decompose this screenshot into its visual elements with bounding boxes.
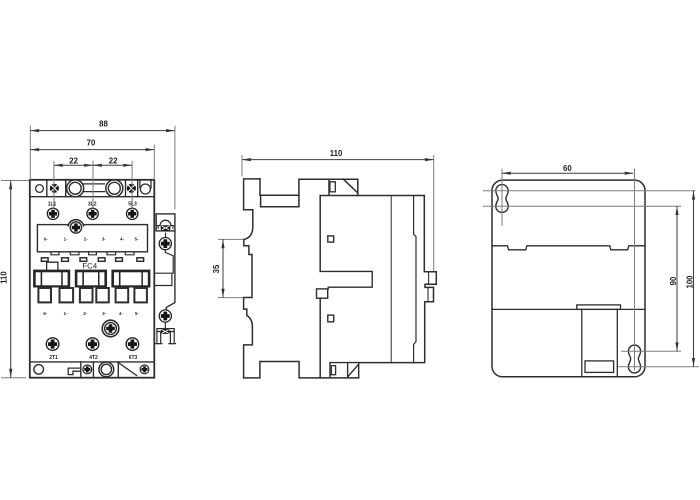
svg-text:3-: 3- [102, 237, 106, 242]
svg-text:1-: 1- [64, 237, 68, 242]
svg-text:6-: 6- [43, 311, 47, 316]
svg-text:5-: 5- [135, 311, 139, 316]
svg-text:110: 110 [330, 149, 343, 158]
svg-text:4-: 4- [119, 311, 123, 316]
svg-text:5L3: 5L3 [128, 201, 137, 207]
svg-text:4-: 4- [120, 237, 124, 242]
svg-text:4T2: 4T2 [89, 355, 98, 361]
svg-text:22: 22 [69, 157, 78, 166]
svg-text:6T3: 6T3 [129, 355, 138, 361]
svg-text:88: 88 [99, 119, 108, 128]
svg-text:1-: 1- [64, 311, 68, 316]
svg-text:3-: 3- [102, 311, 106, 316]
svg-text:1L1: 1L1 [48, 201, 57, 207]
svg-text:110: 110 [0, 271, 9, 284]
svg-text:2T1: 2T1 [49, 355, 58, 361]
svg-text:6-: 6- [44, 237, 48, 242]
svg-text:22: 22 [109, 157, 118, 166]
svg-text:70: 70 [87, 139, 96, 148]
svg-text:60: 60 [563, 164, 572, 173]
svg-text:3L2: 3L2 [88, 201, 97, 207]
svg-text:2-: 2- [84, 237, 88, 242]
svg-text:100: 100 [685, 275, 694, 289]
svg-text:90: 90 [669, 276, 678, 285]
svg-text:FC4: FC4 [82, 261, 97, 270]
svg-text:2-: 2- [83, 311, 87, 316]
svg-text:35: 35 [212, 264, 221, 273]
svg-text:5-: 5- [135, 237, 139, 242]
